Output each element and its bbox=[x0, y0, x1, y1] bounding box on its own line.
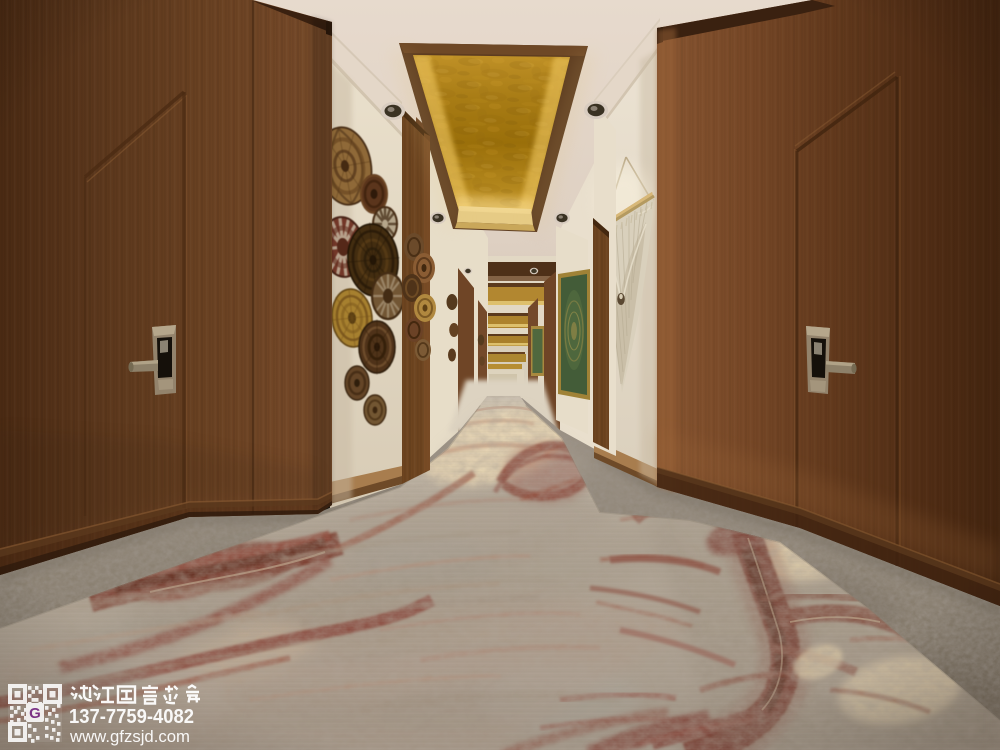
svg-text:G: G bbox=[29, 705, 41, 722]
svg-text:137-7759-4082: 137-7759-4082 bbox=[69, 706, 194, 728]
svg-text:www.gfzsjd.com: www.gfzsjd.com bbox=[69, 727, 190, 746]
